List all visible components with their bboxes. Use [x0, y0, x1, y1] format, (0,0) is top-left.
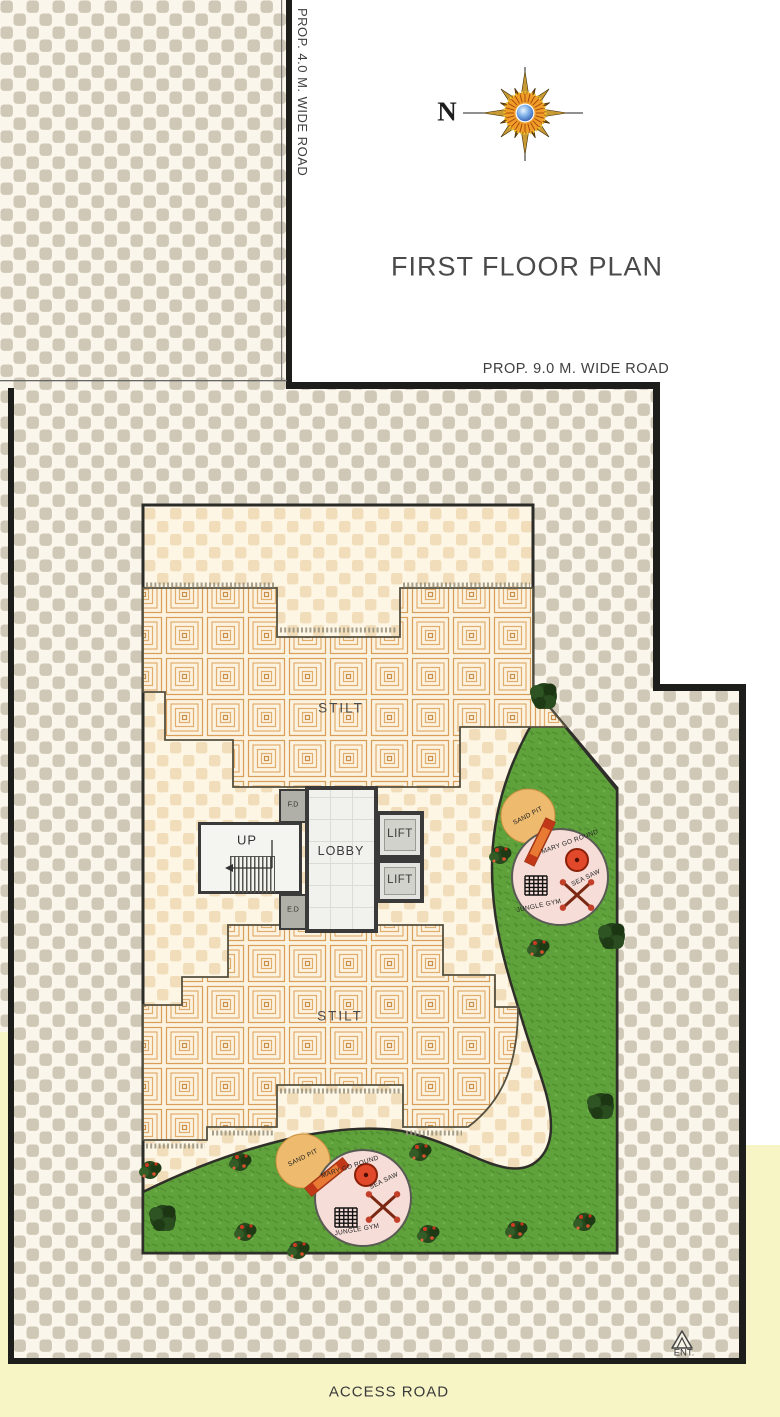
lift-upper-label: LIFT: [387, 828, 413, 840]
road-label-south: ACCESS ROAD: [329, 1384, 449, 1401]
lobby-label: LOBBY: [318, 844, 365, 858]
floor-plan-page: FIRST FLOOR PLAN N PROP. 4.0 M. WIDE ROA…: [0, 0, 780, 1417]
entrance-label: ENT.: [674, 1348, 695, 1359]
road-label-north: PROP. 9.0 M. WIDE ROAD: [483, 361, 669, 377]
site-plan-canvas: [0, 0, 780, 1417]
road-label-west: PROP. 4.0 M. WIDE ROAD: [295, 8, 310, 176]
north-label: N: [437, 97, 457, 128]
merry-go-round-icon: [566, 849, 588, 871]
electrical-duct-label: E.D: [287, 907, 299, 914]
stair-treads: [230, 856, 275, 893]
fire-duct-label: F.D: [288, 802, 299, 809]
lobby-room: [305, 786, 378, 933]
stilt-upper-label: STILT: [318, 701, 364, 716]
page-title: FIRST FLOOR PLAN: [391, 252, 663, 283]
lift-lower-label: LIFT: [387, 874, 413, 886]
stilt-lower-label: STILT: [317, 1009, 363, 1024]
stair-up-label: UP: [237, 833, 257, 848]
